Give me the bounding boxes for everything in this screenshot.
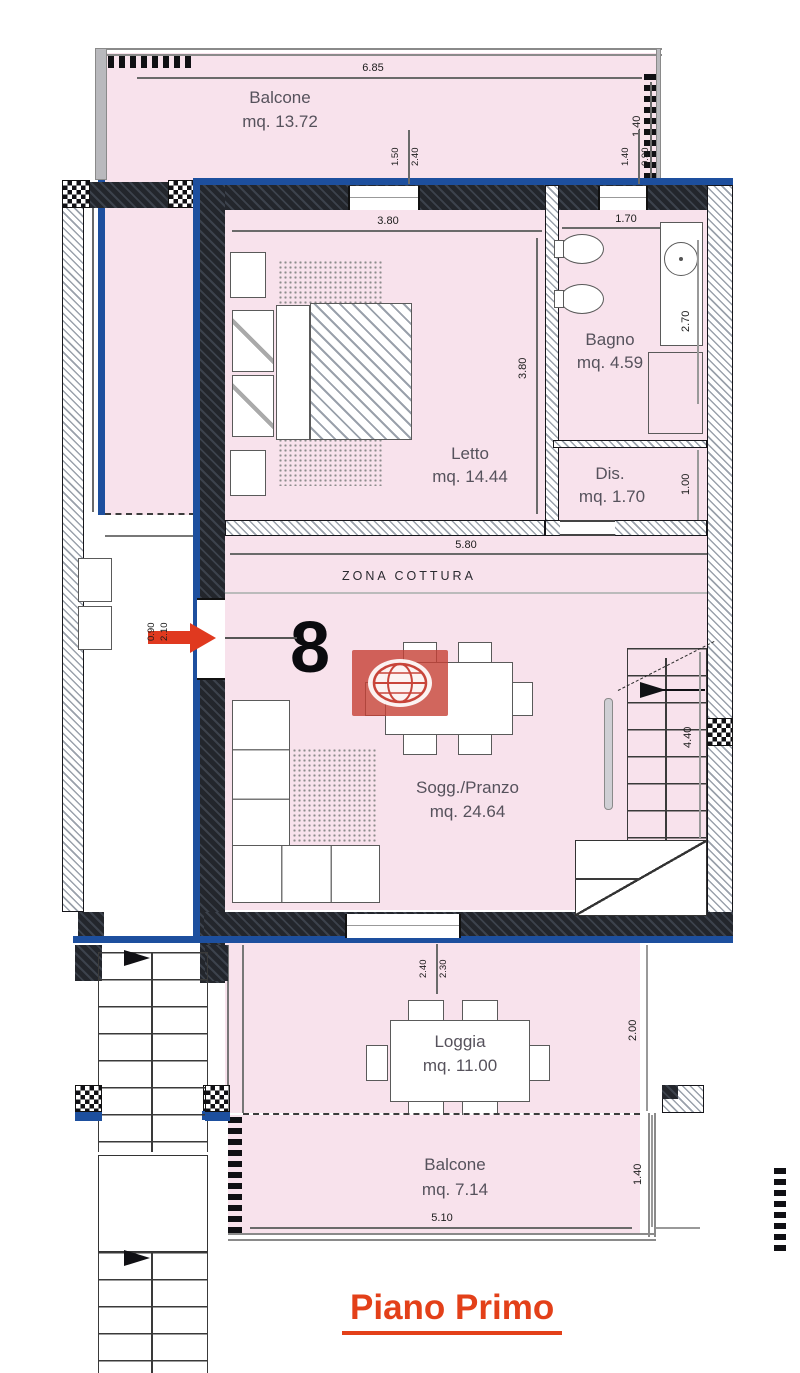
- floor-title: Piano Primo: [342, 1288, 562, 1335]
- dim-letto-depth: 3.80: [518, 344, 534, 392]
- dim-balcone-top-width: 6.85: [352, 62, 394, 74]
- dimline-letto-depth: [536, 238, 538, 514]
- dim-loggia-door-height: 2.30: [439, 946, 454, 992]
- stair-landing-tread: [575, 878, 640, 880]
- dim-living-width: 5.80: [446, 539, 486, 551]
- meter-box-2: [78, 606, 112, 650]
- right-wall-checker: [707, 718, 733, 746]
- balcone-arm-end-dash: [105, 513, 195, 515]
- balcone-corner-tick: [656, 1227, 700, 1229]
- dim-loggia-depth: 2.00: [628, 1006, 644, 1054]
- wall-junction-checker-1: [62, 180, 90, 208]
- balcone-arm-top-wall: [88, 182, 172, 208]
- ext-stairs-checker-right: [205, 1085, 230, 1112]
- dim-balcone-bottom-depth: 1.40: [633, 1150, 649, 1198]
- dimline-living-width: [230, 553, 707, 555]
- dim-letto-window-width: 1.50: [391, 134, 406, 180]
- stair-arrow-line: [645, 689, 705, 691]
- ext-stair-arrow-icon-1: [124, 950, 150, 966]
- dim-stair-span: 4.40: [683, 714, 698, 760]
- ext-stairs-blue-cap-right: [205, 1112, 230, 1121]
- zona-cottura-label: ZONA COTTURA: [342, 569, 476, 583]
- balcone-top-left-wall: [95, 48, 107, 180]
- balcone-bottom-right-edge: [648, 1113, 656, 1237]
- ext-stairs-flight-1: [98, 952, 208, 1152]
- dimline-letto-width: [232, 230, 542, 232]
- meter-box-1: [78, 558, 112, 602]
- letto-rug-bottom: [278, 438, 382, 486]
- balcone-top-right-edge: [656, 48, 661, 180]
- dining-chair-bottom-2: [458, 733, 492, 755]
- ext-stairs-flight-2: [98, 1252, 208, 1373]
- loggia-chair-right: [528, 1045, 550, 1081]
- agency-watermark-logo: [352, 650, 448, 716]
- balcone-top-name: Balcone: [210, 88, 350, 108]
- entrance-arrow-icon: [190, 623, 216, 653]
- letto-area: mq. 14.44: [415, 467, 525, 487]
- ext-stairs-wall-right: [205, 945, 228, 981]
- dining-chair-right: [511, 682, 533, 716]
- balcone-top-teeth-row: [108, 56, 192, 68]
- kitchen-counter-horizontal: [232, 845, 380, 903]
- letto-living-wall: [225, 520, 545, 536]
- bagno-dis-divider: [553, 440, 707, 448]
- dim-bagno-window-width: 1.40: [621, 134, 636, 180]
- neighbor-balcony-teeth: [774, 1168, 786, 1252]
- dimline-bagno-depth: [697, 240, 699, 404]
- left-wall-blue: [193, 178, 200, 942]
- loggia-right-pillar-cap: [662, 1085, 678, 1099]
- bed-pillow-2: [232, 375, 274, 437]
- dim-letto-window-height: 2.40: [411, 134, 426, 180]
- dimline-stair-span: [699, 652, 701, 838]
- balcone-left-arm-fill: [105, 180, 195, 515]
- dim-dis-depth: 1.00: [681, 462, 696, 506]
- bagno-area: mq. 4.59: [568, 353, 652, 373]
- bagno-bidet-tap: [554, 290, 564, 308]
- dim-bagno-width: 1.70: [608, 213, 644, 225]
- kitchen-floor-dots: [292, 748, 378, 843]
- loggia-name: Loggia: [400, 1032, 520, 1052]
- letto-bagno-divider: [545, 185, 559, 535]
- letto-window: [348, 186, 420, 210]
- dis-name: Dis.: [585, 464, 635, 484]
- dimline-balcone-top-width: [137, 77, 642, 79]
- balcone-bottom-name: Balcone: [415, 1155, 495, 1175]
- loggia-left-rail-2: [242, 945, 244, 1113]
- nightstand-top: [230, 252, 266, 298]
- entry-door-leaf-line: [225, 637, 297, 639]
- loggia-door-opening: [345, 914, 461, 938]
- unit-number: 8: [290, 612, 330, 684]
- dim-bagno-depth: 2.70: [681, 298, 696, 344]
- bagno-wc: [560, 234, 604, 264]
- loggia-chair-top-2: [462, 1000, 498, 1022]
- balcone-bottom-teeth-col: [228, 1117, 242, 1235]
- dining-chair-bottom-1: [403, 733, 437, 755]
- letto-rug-top: [278, 260, 382, 304]
- dim-entry-door-height: 2.10: [160, 612, 172, 652]
- balcone-top-railing: [95, 48, 662, 56]
- ext-stair-arrow-icon-2: [124, 1250, 150, 1266]
- balcone-arm-blue-stripe: [98, 180, 105, 515]
- letto-name: Letto: [430, 444, 510, 464]
- sogg-area: mq. 24.64: [405, 802, 530, 822]
- bagno-name: Bagno: [575, 330, 645, 350]
- dis-door-opening: [560, 520, 615, 536]
- left-hatched-band: [62, 180, 84, 912]
- dim-balcone-bottom-width: 5.10: [422, 1212, 462, 1224]
- bagno-wc-tank: [554, 240, 564, 258]
- left-wall: [200, 185, 225, 942]
- sogg-name: Sogg./Pranzo: [395, 778, 540, 798]
- dim-entry-door-width: 0.90: [147, 612, 159, 652]
- balcone-bottom-area: mq. 7.14: [412, 1180, 498, 1200]
- floor-plan: 6.85 1.40 Balcone mq. 13.72 5.60 1.50 2.…: [0, 0, 800, 1373]
- bagno-window: [598, 186, 648, 210]
- ext-stairs-blue-cap-left: [75, 1112, 102, 1121]
- bed-duvet: [310, 303, 412, 440]
- zona-cottura-line: [225, 592, 707, 594]
- bed-pillow-1: [232, 310, 274, 372]
- bagno-shower: [648, 352, 703, 434]
- ext-stairs-rail-2: [151, 1252, 153, 1373]
- right-wall: [707, 185, 733, 942]
- corridor-top-line: [105, 535, 195, 537]
- loggia-chair-left: [366, 1045, 388, 1081]
- dimline-balcone-bottom-width: [250, 1227, 632, 1229]
- nightstand-bottom: [230, 450, 266, 496]
- ext-stairs-landing: [98, 1155, 208, 1252]
- ext-stairs-rail-1: [151, 952, 153, 1152]
- dim-bagno-window-height: 0.90: [641, 134, 656, 180]
- wall-junction-checker-2: [168, 180, 196, 208]
- radiator: [604, 698, 613, 810]
- dim-letto-width: 3.80: [368, 215, 408, 227]
- balcone-bottom-edge: [228, 1233, 656, 1241]
- bottom-wall-left-ext: [78, 912, 104, 938]
- loggia-chair-top-1: [408, 1000, 444, 1022]
- dim-loggia-door-width: 2.40: [419, 946, 434, 992]
- bagno-bidet: [560, 284, 604, 314]
- ext-stairs-checker-left: [75, 1085, 102, 1112]
- dimline-dis-depth: [697, 450, 699, 520]
- dis-area: mq. 1.70: [572, 487, 652, 507]
- dimline-loggia-depth: [646, 945, 648, 1111]
- dining-chair-top-2: [458, 642, 492, 664]
- top-wall: [195, 185, 733, 210]
- dimline-side-left: [92, 190, 94, 512]
- globe-icon: [352, 650, 448, 716]
- balcone-top-area: mq. 13.72: [205, 112, 355, 132]
- bed-sheet-strip: [276, 305, 310, 440]
- loggia-area: mq. 11.00: [398, 1056, 522, 1076]
- bagno-sink-drain: [679, 257, 683, 261]
